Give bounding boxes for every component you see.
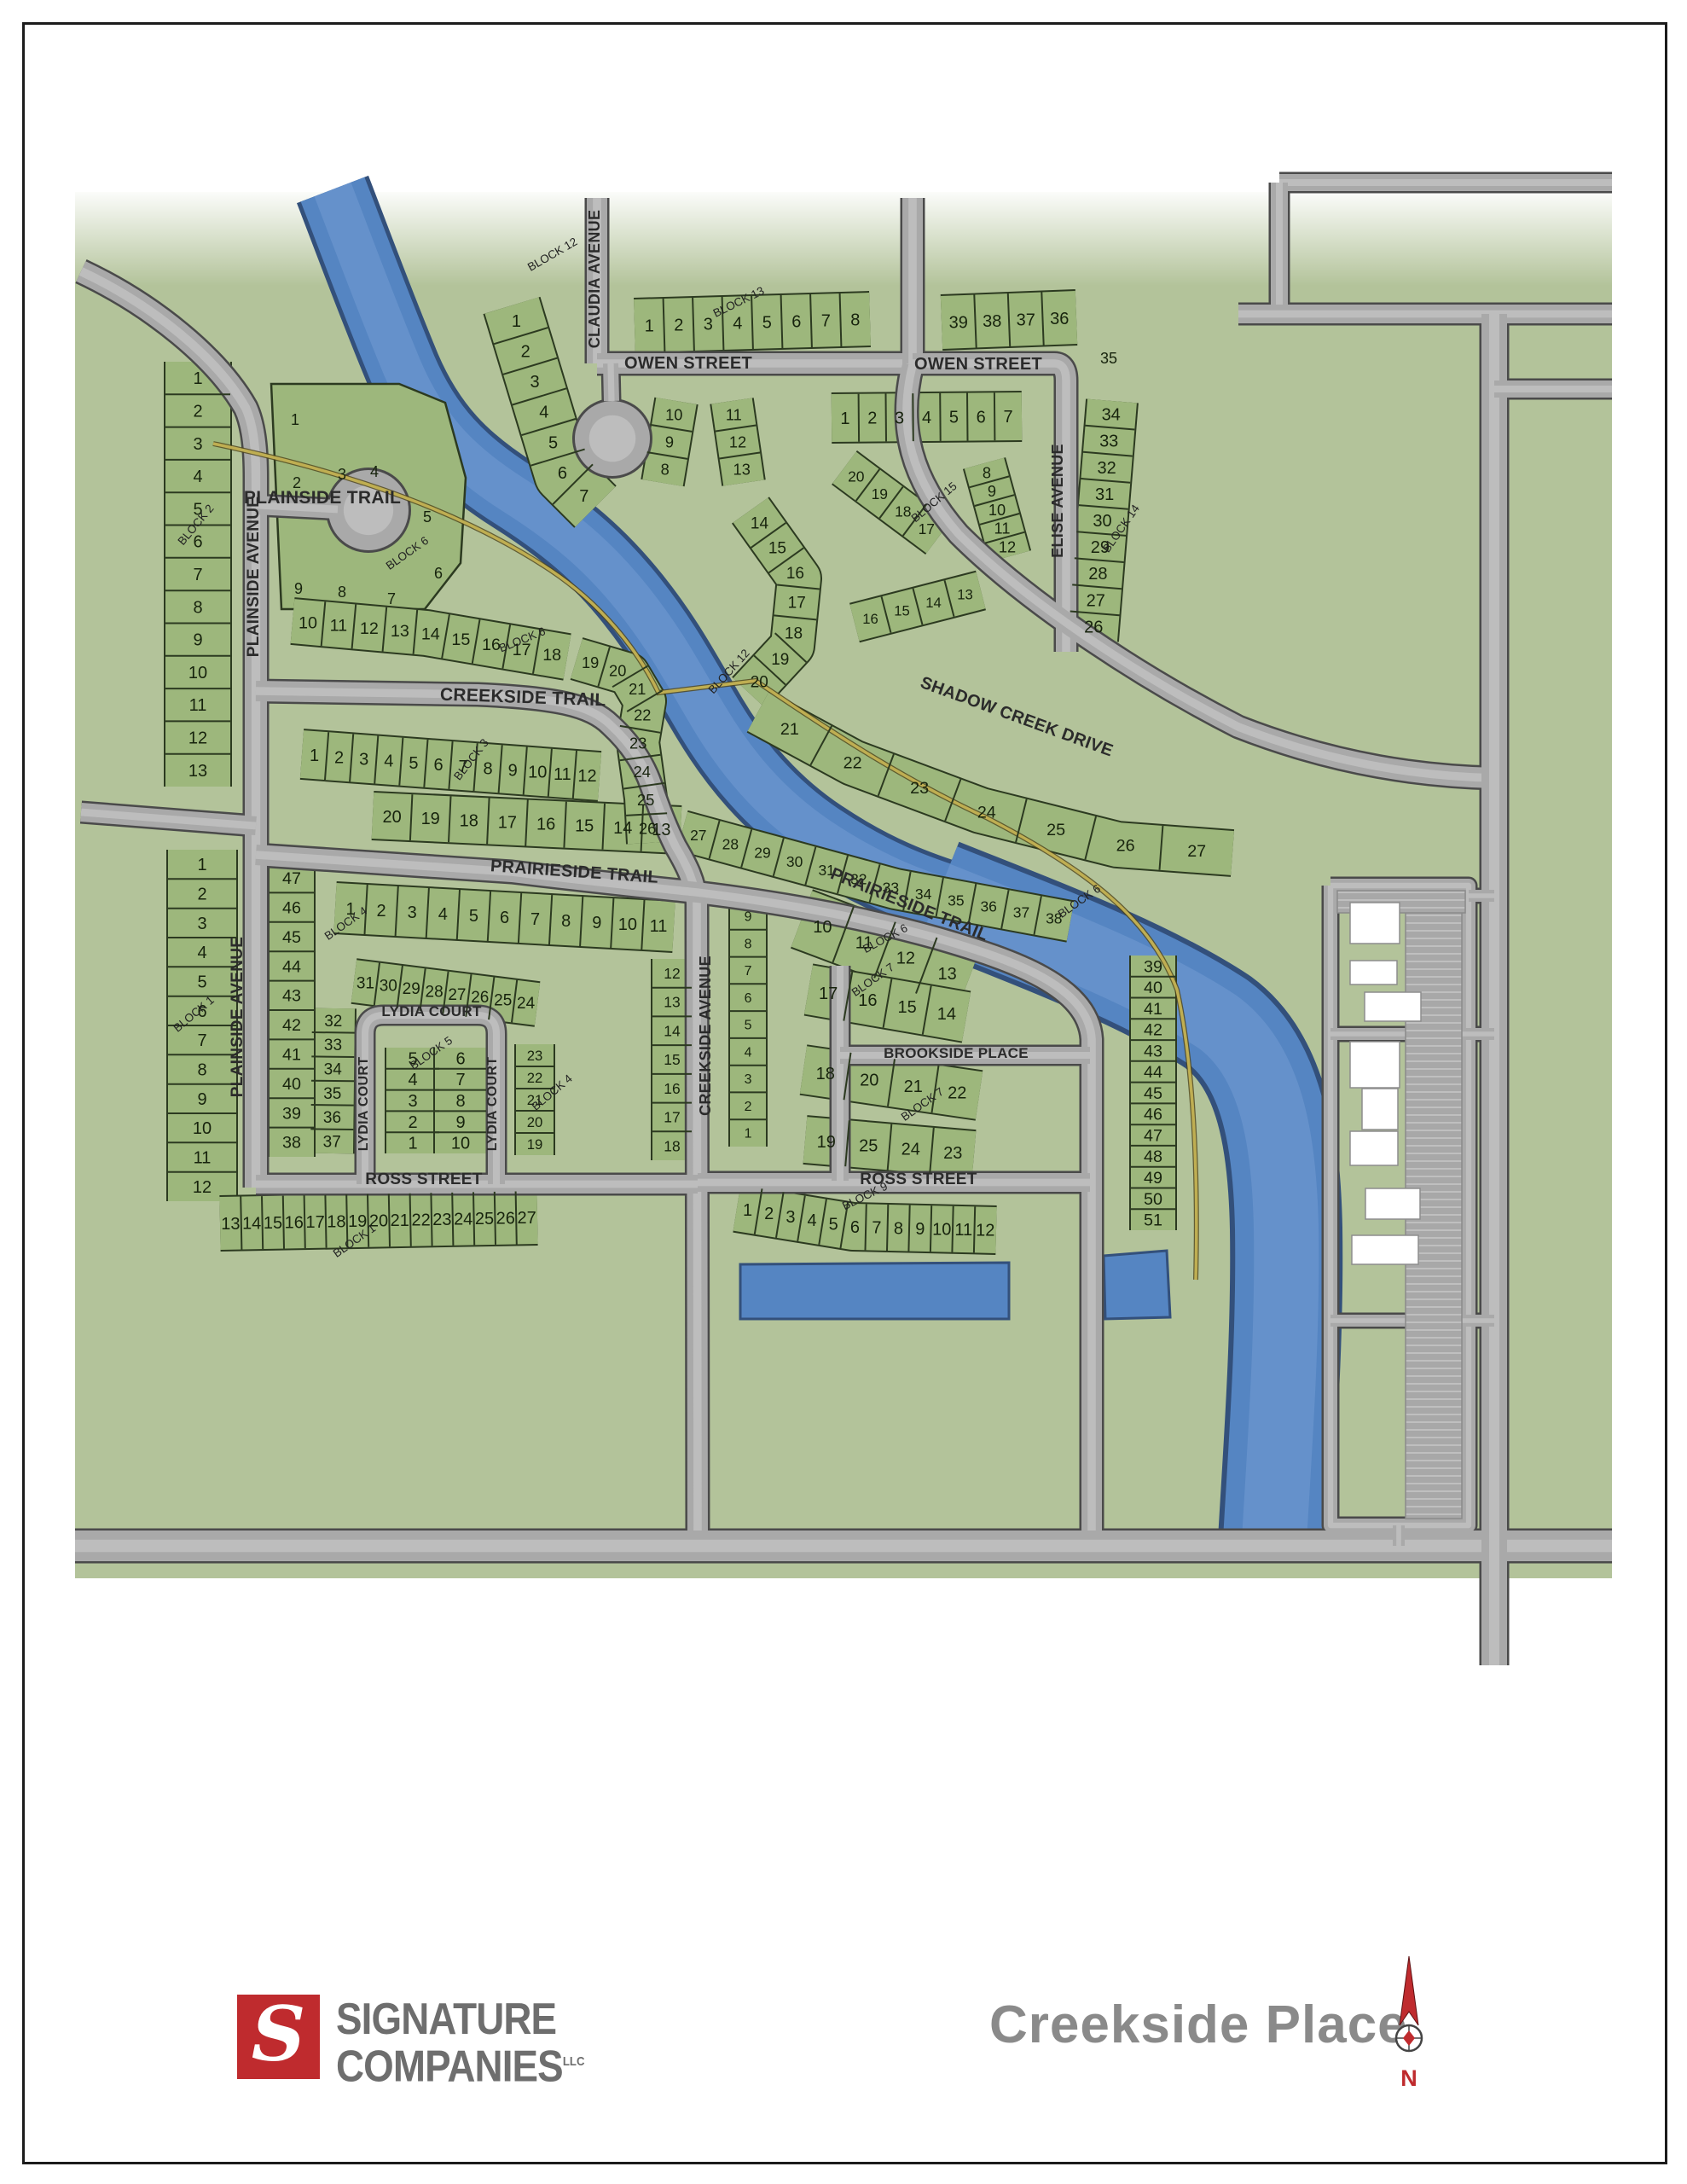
lot-number: 19 bbox=[771, 651, 789, 669]
lot-number: 11 bbox=[954, 1221, 972, 1240]
lot-number: 9 bbox=[193, 631, 202, 650]
lot-number: 36 bbox=[323, 1109, 341, 1127]
lot-number: 51 bbox=[1144, 1211, 1162, 1230]
lot-number: 3 bbox=[408, 903, 417, 922]
lot-number: 5 bbox=[548, 433, 558, 452]
lot-number: 4 bbox=[384, 752, 393, 771]
lot-number: 24 bbox=[901, 1141, 920, 1159]
lot-number: 7 bbox=[1004, 408, 1013, 427]
lot-number: 9 bbox=[197, 1090, 206, 1109]
lot-number: 9 bbox=[592, 914, 601, 932]
logo-s-glyph: S bbox=[252, 1996, 306, 2071]
lot-number: 5 bbox=[469, 907, 478, 926]
lot-number: 22 bbox=[948, 1083, 966, 1102]
lot-number: 25 bbox=[637, 791, 654, 809]
lot-number: 29 bbox=[403, 980, 420, 998]
lot-number: 25 bbox=[494, 992, 512, 1010]
lot-number: 5 bbox=[409, 754, 418, 773]
lot-number: 23 bbox=[432, 1211, 451, 1229]
lot-number: 21 bbox=[629, 680, 646, 698]
lot-number: 12 bbox=[976, 1222, 994, 1240]
lot-number: 27 bbox=[1087, 591, 1105, 610]
lot-number: 13 bbox=[188, 762, 207, 781]
plat-map: 1234567891011121314151617181920212223242… bbox=[0, 0, 1687, 2184]
lot-number: 1 bbox=[408, 1135, 417, 1153]
plat-page: 1234567891011121314151617181920212223242… bbox=[0, 0, 1687, 2184]
lot-number: 9 bbox=[915, 1220, 925, 1239]
commercial-building bbox=[1350, 1042, 1400, 1088]
lot-number: 9 bbox=[988, 482, 996, 500]
lot-number: 14 bbox=[613, 819, 632, 838]
lot-number: 18 bbox=[785, 625, 803, 643]
lot-number: 6 bbox=[977, 408, 986, 427]
lot-number: 8 bbox=[455, 1092, 465, 1111]
lot-number: 14 bbox=[937, 1005, 956, 1024]
lot-number: 1 bbox=[840, 409, 849, 428]
lot-number: 35 bbox=[323, 1085, 341, 1103]
lot-number: 12 bbox=[360, 619, 379, 638]
lot-number: 50 bbox=[1144, 1190, 1162, 1209]
lot-number: 3 bbox=[359, 750, 368, 769]
street-label-lydia_court: LYDIA COURT bbox=[485, 1057, 500, 1152]
lot-number: 20 bbox=[382, 808, 401, 827]
lot-number: 37 bbox=[1013, 904, 1029, 921]
lot-number: 27 bbox=[690, 827, 706, 844]
lot-number: 25 bbox=[475, 1210, 494, 1228]
lot-number: 19 bbox=[527, 1136, 543, 1153]
lot-number: 21 bbox=[391, 1211, 409, 1230]
lot-number: 3 bbox=[704, 316, 713, 334]
commercial-building bbox=[1352, 1235, 1418, 1264]
lot-number: 24 bbox=[454, 1211, 472, 1229]
lot-number: 22 bbox=[527, 1070, 543, 1086]
lot-number: 1 bbox=[645, 317, 654, 336]
lot-number: 7 bbox=[745, 964, 752, 979]
lot-number: 1 bbox=[512, 312, 521, 331]
lot-number: 9 bbox=[294, 580, 303, 597]
lot-number: 3 bbox=[786, 1208, 795, 1227]
lot-number: 19 bbox=[421, 810, 440, 828]
street-label-ross_street: ROSS STREET bbox=[860, 1170, 977, 1188]
lot-number: 46 bbox=[282, 899, 301, 918]
lot-number: 5 bbox=[949, 409, 959, 427]
lot-number: 39 bbox=[1144, 957, 1162, 976]
lot-number: 8 bbox=[894, 1219, 903, 1238]
lot-number: 22 bbox=[411, 1211, 430, 1230]
lot-number: 11 bbox=[726, 405, 742, 423]
street-label-lydia_court: LYDIA COURT bbox=[381, 1003, 482, 1019]
lot-number: 5 bbox=[829, 1215, 838, 1234]
compass-icon bbox=[1378, 1954, 1440, 2066]
lot-number: 7 bbox=[387, 590, 396, 607]
lot-number: 15 bbox=[894, 603, 910, 619]
lot-number: 8 bbox=[661, 460, 670, 478]
lot-number: 6 bbox=[850, 1218, 860, 1237]
lot-number: 12 bbox=[999, 538, 1016, 556]
lot-number: 9 bbox=[665, 433, 674, 450]
lot-number: 3 bbox=[530, 373, 539, 392]
lot-number: 4 bbox=[408, 1071, 417, 1089]
lot-number: 6 bbox=[791, 313, 801, 332]
lot-number: 1 bbox=[197, 856, 206, 874]
lot-number: 33 bbox=[324, 1037, 342, 1054]
lot-number: 23 bbox=[629, 735, 646, 752]
lot-number: 8 bbox=[561, 912, 571, 931]
lot-number: 32 bbox=[1097, 459, 1116, 478]
lot-number: 24 bbox=[634, 763, 651, 781]
lot-number: 6 bbox=[745, 991, 752, 1006]
north-label: N bbox=[1378, 2065, 1440, 2092]
lot-number: 17 bbox=[819, 985, 838, 1003]
lot-number: 25 bbox=[859, 1136, 878, 1155]
lot-number: 37 bbox=[1017, 311, 1035, 329]
lot-number: 14 bbox=[925, 595, 942, 611]
lot-number: 1 bbox=[291, 411, 299, 428]
signature-companies-wordmark: SIGNATURE COMPANIESLLC bbox=[336, 1998, 584, 2088]
lot-number: 15 bbox=[575, 817, 594, 836]
lot-number: 1 bbox=[745, 1127, 752, 1141]
lot-number: 13 bbox=[221, 1215, 240, 1234]
lot-number: 30 bbox=[1093, 512, 1111, 531]
lot-number: 15 bbox=[264, 1214, 282, 1233]
lot-number: 14 bbox=[751, 514, 769, 532]
lot-number: 33 bbox=[1099, 433, 1118, 451]
lot-number: 12 bbox=[577, 767, 596, 786]
lot-number: 3 bbox=[193, 435, 202, 454]
lot-number: 1 bbox=[193, 369, 202, 388]
lot-number: 7 bbox=[197, 1031, 206, 1050]
lot-number: 7 bbox=[821, 312, 831, 331]
street-label-owen_street: OWEN STREET bbox=[624, 354, 752, 373]
lot-number: 21 bbox=[780, 720, 799, 739]
lot-number: 20 bbox=[751, 673, 768, 691]
logo-line2: COMPANIES bbox=[336, 2042, 563, 2091]
lot-number: 13 bbox=[391, 622, 409, 641]
lot-number: 4 bbox=[370, 463, 379, 480]
lot-number: 2 bbox=[764, 1205, 774, 1223]
lot-number: 29 bbox=[754, 845, 770, 862]
lot-number: 18 bbox=[816, 1065, 835, 1083]
lot-number: 48 bbox=[1144, 1147, 1162, 1166]
lot-number: 17 bbox=[788, 595, 806, 613]
lot-number: 12 bbox=[188, 729, 207, 748]
pond bbox=[1104, 1251, 1170, 1319]
lot-number: 3 bbox=[408, 1092, 417, 1111]
commercial-building bbox=[1362, 1089, 1398, 1130]
lot-number: 8 bbox=[484, 759, 493, 778]
lot-number: 4 bbox=[193, 468, 202, 486]
lot-number: 30 bbox=[786, 853, 803, 870]
lot-number: 24 bbox=[517, 995, 536, 1013]
lot-number: 47 bbox=[282, 869, 301, 888]
lot-number: 1 bbox=[743, 1201, 752, 1220]
commercial-building bbox=[1365, 1188, 1420, 1219]
lot-number: 32 bbox=[324, 1013, 342, 1031]
lot-number: 22 bbox=[634, 706, 651, 724]
lot-number: 46 bbox=[1144, 1106, 1162, 1124]
lot-number: 15 bbox=[451, 630, 470, 649]
lot-number: 7 bbox=[455, 1071, 465, 1089]
street-label-brookside_place: BROOKSIDE PLACE bbox=[884, 1045, 1029, 1061]
lot-number: 10 bbox=[618, 915, 637, 934]
lot-number: 27 bbox=[448, 986, 466, 1004]
lot-number: 9 bbox=[508, 761, 518, 780]
lot-number: 14 bbox=[242, 1214, 261, 1233]
lot-number: 43 bbox=[282, 987, 301, 1006]
lot-number: 14 bbox=[421, 625, 440, 644]
lot-number: 44 bbox=[282, 957, 301, 976]
lot-number: 27 bbox=[1187, 842, 1206, 861]
lot-number: 7 bbox=[872, 1219, 881, 1238]
lot-number: 5 bbox=[197, 973, 206, 992]
lot-number: 10 bbox=[451, 1135, 470, 1153]
signature-companies-logo: S bbox=[237, 1995, 320, 2079]
lot-number: 16 bbox=[536, 816, 555, 834]
logo-line1: SIGNATURE bbox=[336, 1995, 556, 2044]
lot-number: 6 bbox=[558, 464, 567, 483]
lot-number: 3 bbox=[197, 915, 206, 933]
lot-number: 47 bbox=[1144, 1127, 1162, 1146]
lot-number: 8 bbox=[983, 463, 991, 481]
lot-number: 8 bbox=[193, 598, 202, 617]
street-label-ross_street: ROSS STREET bbox=[365, 1170, 482, 1188]
lot-number: 44 bbox=[1144, 1063, 1162, 1082]
lot-number: 2 bbox=[193, 403, 202, 421]
lot-number: 10 bbox=[193, 1119, 212, 1138]
street-label-plainside_trail: PLAINSIDE TRAIL bbox=[244, 488, 401, 508]
lot-number: 27 bbox=[517, 1209, 536, 1228]
commercial-building bbox=[1350, 961, 1397, 985]
lot-number: 36 bbox=[980, 897, 996, 915]
lot-number: 4 bbox=[922, 409, 931, 427]
lot-number: 43 bbox=[1144, 1042, 1162, 1060]
lot-number: 13 bbox=[937, 965, 956, 984]
lot-number: 31 bbox=[357, 974, 374, 992]
lot-number: 10 bbox=[188, 664, 207, 682]
lot-number: 2 bbox=[867, 409, 877, 428]
lot-number: 17 bbox=[664, 1109, 680, 1126]
lot-number: 37 bbox=[323, 1134, 341, 1152]
commercial-building bbox=[1365, 992, 1421, 1021]
lot-number: 8 bbox=[338, 584, 346, 601]
lot-number: 2 bbox=[197, 886, 206, 904]
lot-number: 28 bbox=[722, 836, 739, 853]
lot-number: 49 bbox=[1144, 1169, 1162, 1188]
lot-number: 23 bbox=[910, 779, 929, 798]
street-label-owen_street: OWEN STREET bbox=[914, 355, 1042, 374]
logo-llc: LLC bbox=[563, 2054, 585, 2069]
lot-number: 40 bbox=[282, 1075, 301, 1094]
lot-number: 42 bbox=[282, 1016, 301, 1035]
lot-number: 10 bbox=[299, 614, 317, 633]
commercial-building bbox=[1350, 1131, 1398, 1165]
lot-number: 17 bbox=[919, 520, 935, 537]
lot-number: 26 bbox=[639, 820, 656, 838]
street-label-elise_avenue: ELISE AVENUE bbox=[1049, 444, 1066, 558]
lot-number: 2 bbox=[521, 342, 530, 361]
lot-number: 15 bbox=[768, 540, 786, 558]
street-label-creekside_avenue: CREEKSIDE AVENUE bbox=[697, 955, 714, 1116]
lot-number: 20 bbox=[848, 468, 865, 485]
lot-number: 16 bbox=[786, 565, 804, 583]
lot-number: 11 bbox=[194, 1149, 212, 1168]
lot-number: 17 bbox=[305, 1213, 324, 1232]
lot-number: 36 bbox=[1050, 310, 1069, 328]
lot-number: 28 bbox=[426, 984, 443, 1002]
lot-number: 20 bbox=[609, 662, 626, 680]
lot-number: 2 bbox=[408, 1113, 417, 1132]
lot-number: 4 bbox=[438, 905, 448, 924]
lot-number: 12 bbox=[193, 1178, 212, 1197]
lot-number: 19 bbox=[582, 653, 599, 671]
lot-number: 34 bbox=[1102, 406, 1121, 425]
lot-number: 7 bbox=[193, 566, 202, 584]
lot-number: 31 bbox=[1095, 485, 1114, 504]
lot-number: 2 bbox=[334, 748, 344, 767]
lot-number: 5 bbox=[745, 1019, 752, 1033]
lot-number: 8 bbox=[745, 937, 752, 951]
lot-number: 26 bbox=[1116, 837, 1135, 856]
lot-number: 18 bbox=[895, 502, 911, 520]
lot-number: 6 bbox=[433, 756, 443, 775]
lot-number: 11 bbox=[994, 520, 1011, 537]
lot-number: 45 bbox=[1144, 1084, 1162, 1103]
lot-number: 6 bbox=[434, 565, 443, 582]
lot-number: 20 bbox=[527, 1114, 543, 1130]
street-label-plainside_avenue: PLAINSIDE AVENUE bbox=[229, 937, 246, 1098]
lot-number: 13 bbox=[664, 994, 680, 1011]
lot-number: 8 bbox=[850, 311, 860, 330]
lot-number: 7 bbox=[579, 487, 588, 506]
lot-number: 9 bbox=[455, 1113, 465, 1132]
lot-number: 18 bbox=[327, 1212, 345, 1231]
lot-number: 26 bbox=[1084, 618, 1103, 636]
lot-number: 16 bbox=[664, 1080, 680, 1097]
lot-number: 10 bbox=[813, 918, 832, 937]
lot-number: 21 bbox=[904, 1077, 923, 1096]
lot-number: 9 bbox=[745, 910, 752, 925]
lot-number: 40 bbox=[1144, 979, 1162, 997]
lot-number: 10 bbox=[665, 405, 682, 423]
lot-number: 34 bbox=[324, 1061, 343, 1079]
lot-number: 10 bbox=[528, 764, 547, 782]
lot-number: 19 bbox=[817, 1133, 836, 1152]
lot-number: 18 bbox=[542, 646, 561, 665]
lot-number: 14 bbox=[664, 1022, 681, 1039]
lot-number: 45 bbox=[282, 928, 301, 947]
lot-number: 13 bbox=[733, 460, 751, 478]
lot-number: 16 bbox=[285, 1213, 304, 1232]
lot-number: 42 bbox=[1144, 1021, 1162, 1040]
lot-number: 12 bbox=[896, 950, 915, 968]
lot-number: 10 bbox=[988, 501, 1006, 519]
lot-number: 2 bbox=[674, 317, 683, 335]
lot-number: 20 bbox=[860, 1071, 878, 1089]
lot-number: 28 bbox=[1088, 565, 1107, 584]
north-arrow: N bbox=[1378, 1954, 1440, 2092]
lot-number: 19 bbox=[872, 485, 888, 502]
lot-number: 24 bbox=[977, 804, 996, 822]
lot-number: 4 bbox=[808, 1211, 817, 1230]
commercial-building bbox=[1350, 903, 1400, 944]
lot-number: 23 bbox=[527, 1048, 543, 1064]
lot-number: 22 bbox=[843, 754, 862, 773]
lot-number: 5 bbox=[762, 314, 772, 333]
lot-number: 23 bbox=[943, 1144, 962, 1163]
lot-number: 17 bbox=[498, 813, 517, 832]
lot-number: 26 bbox=[496, 1210, 515, 1228]
lot-number: 15 bbox=[897, 998, 916, 1017]
lot-number: 4 bbox=[539, 404, 548, 422]
plan-title: Creekside Place bbox=[989, 1995, 1408, 2055]
lot-number: 11 bbox=[189, 696, 207, 715]
street-label-claudia_avenue: CLAUDIA AVENUE bbox=[586, 210, 603, 349]
lot-number: 12 bbox=[729, 433, 746, 450]
lot-number: 1 bbox=[310, 746, 319, 765]
lot-number: 4 bbox=[197, 944, 206, 962]
lot-number: 18 bbox=[460, 811, 478, 830]
lot-number: 15 bbox=[664, 1051, 680, 1068]
lot-number: 11 bbox=[330, 617, 348, 636]
lot-number: 30 bbox=[380, 978, 397, 996]
lot-number: 38 bbox=[282, 1134, 301, 1153]
lot-number: 18 bbox=[664, 1137, 680, 1154]
lot-number: 39 bbox=[949, 313, 968, 332]
lot-number: 12 bbox=[664, 965, 680, 982]
lot-number: 6 bbox=[500, 909, 509, 927]
pond bbox=[740, 1263, 1009, 1319]
lot-number: 10 bbox=[932, 1221, 951, 1240]
lot-number: 2 bbox=[745, 1100, 752, 1114]
lot-number: 38 bbox=[983, 312, 1001, 331]
lot-number: 8 bbox=[197, 1061, 206, 1080]
lot-number: 25 bbox=[1046, 821, 1065, 839]
lot-number: 4 bbox=[733, 315, 742, 334]
lot-number: 35 bbox=[948, 892, 964, 909]
lot-number: 41 bbox=[282, 1046, 301, 1065]
lot-number: 3 bbox=[338, 466, 346, 483]
lot-number: 4 bbox=[745, 1045, 752, 1060]
lot-number: 3 bbox=[895, 409, 904, 427]
lot-number: 11 bbox=[650, 917, 668, 936]
lot-number: 2 bbox=[377, 902, 386, 921]
lot-number: 6 bbox=[455, 1049, 465, 1068]
lot-number: 3 bbox=[745, 1072, 752, 1087]
street-label-lydia_court: LYDIA COURT bbox=[357, 1057, 371, 1152]
lot-number: 13 bbox=[957, 587, 973, 603]
lot-number: 41 bbox=[1144, 1000, 1162, 1019]
lot-number: 11 bbox=[554, 765, 571, 784]
lot-number: 16 bbox=[862, 611, 878, 627]
lot-number: 7 bbox=[530, 910, 540, 929]
lot-number: 5 bbox=[423, 508, 432, 526]
lot-number: 35 bbox=[1100, 350, 1117, 367]
street-label-plainside_avenue: PLAINSIDE AVENUE bbox=[245, 497, 263, 658]
lot-number: 39 bbox=[282, 1104, 301, 1123]
